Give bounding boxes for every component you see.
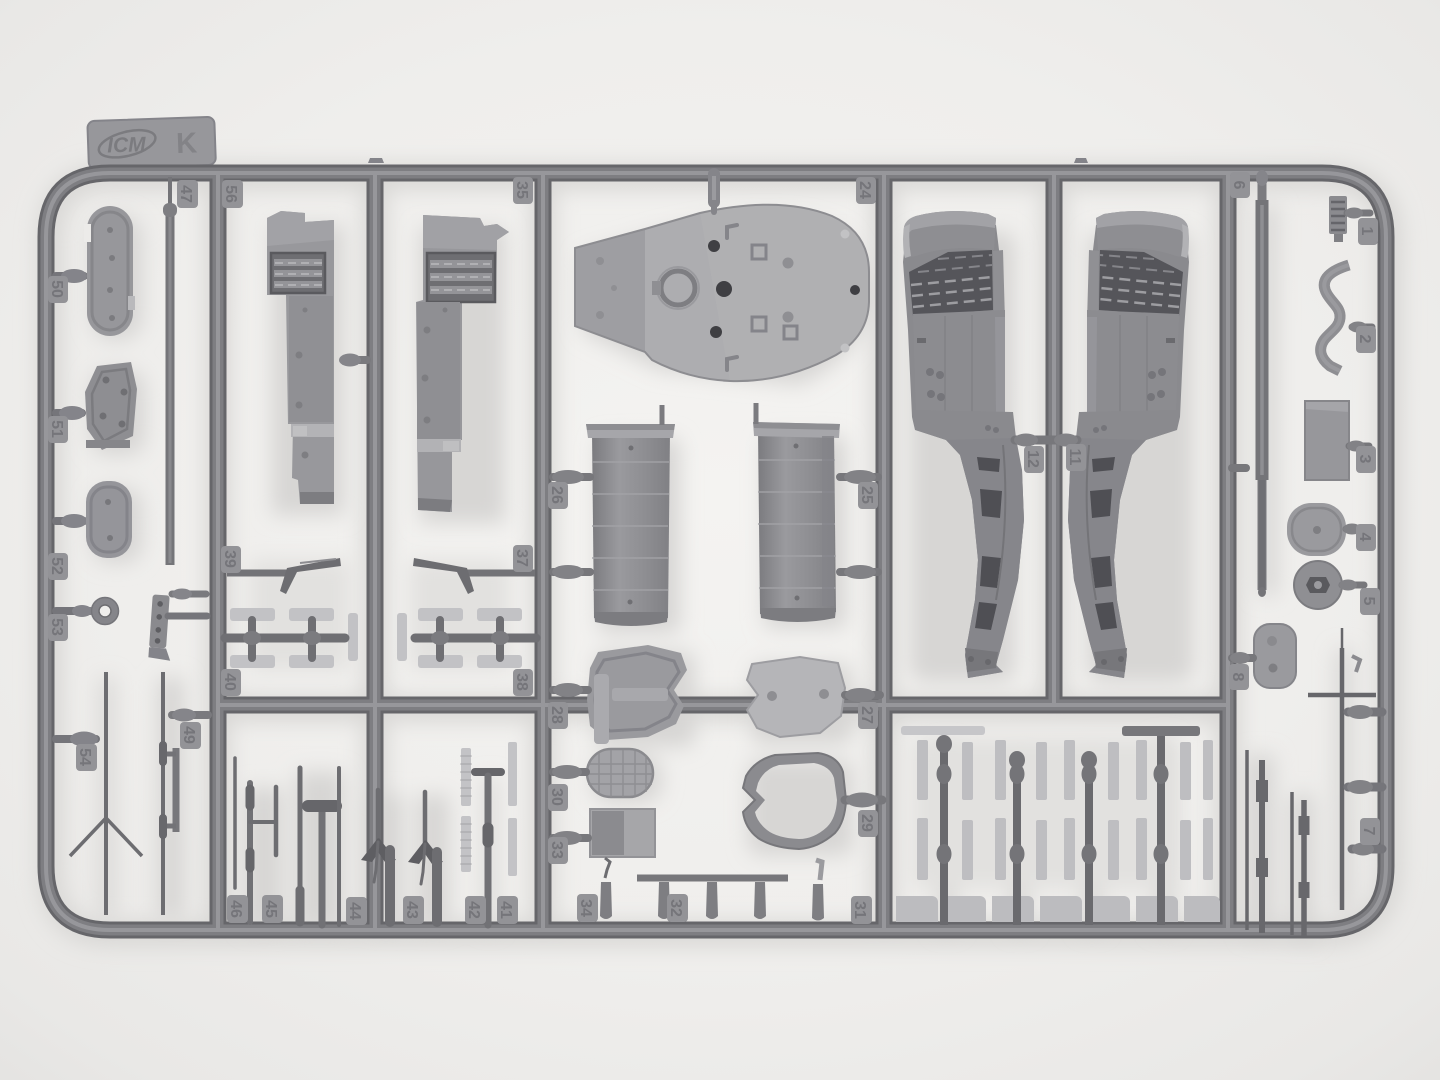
svg-text:39: 39: [221, 550, 238, 568]
svg-text:52: 52: [48, 557, 65, 575]
svg-text:11: 11: [1066, 449, 1083, 466]
svg-text:46: 46: [227, 900, 244, 918]
svg-text:56: 56: [222, 185, 239, 203]
svg-text:53: 53: [48, 618, 65, 636]
svg-text:40: 40: [221, 673, 238, 691]
svg-text:7: 7: [1360, 827, 1377, 836]
svg-text:3: 3: [1356, 455, 1373, 464]
svg-text:42: 42: [465, 901, 482, 919]
svg-text:38: 38: [513, 673, 530, 691]
svg-text:32: 32: [667, 899, 684, 917]
svg-text:ICM: ICM: [107, 133, 147, 157]
svg-text:31: 31: [851, 901, 868, 919]
svg-text:2: 2: [1356, 335, 1373, 344]
svg-text:50: 50: [48, 280, 65, 298]
svg-text:24: 24: [856, 181, 873, 199]
svg-text:43: 43: [403, 901, 420, 919]
svg-text:4: 4: [1356, 533, 1373, 542]
svg-text:45: 45: [262, 900, 279, 918]
svg-text:51: 51: [48, 420, 65, 438]
svg-text:34: 34: [577, 899, 594, 917]
svg-text:47: 47: [177, 185, 194, 203]
svg-text:27: 27: [858, 706, 875, 724]
svg-text:26: 26: [548, 486, 565, 504]
svg-text:5: 5: [1360, 597, 1377, 606]
svg-text:6: 6: [1230, 181, 1247, 190]
svg-text:25: 25: [858, 486, 875, 504]
svg-text:49: 49: [180, 726, 197, 744]
svg-text:41: 41: [497, 901, 514, 919]
svg-text:12: 12: [1024, 450, 1041, 468]
svg-text:54: 54: [76, 748, 93, 766]
svg-text:37: 37: [513, 549, 530, 567]
svg-text:33: 33: [548, 841, 565, 859]
svg-text:44: 44: [346, 902, 363, 920]
svg-text:35: 35: [513, 181, 530, 199]
svg-text:1: 1: [1358, 227, 1375, 236]
svg-text:8: 8: [1229, 673, 1246, 682]
svg-text:28: 28: [548, 706, 565, 724]
svg-text:30: 30: [548, 788, 565, 806]
svg-text:29: 29: [858, 814, 875, 832]
svg-text:K: K: [176, 127, 198, 160]
